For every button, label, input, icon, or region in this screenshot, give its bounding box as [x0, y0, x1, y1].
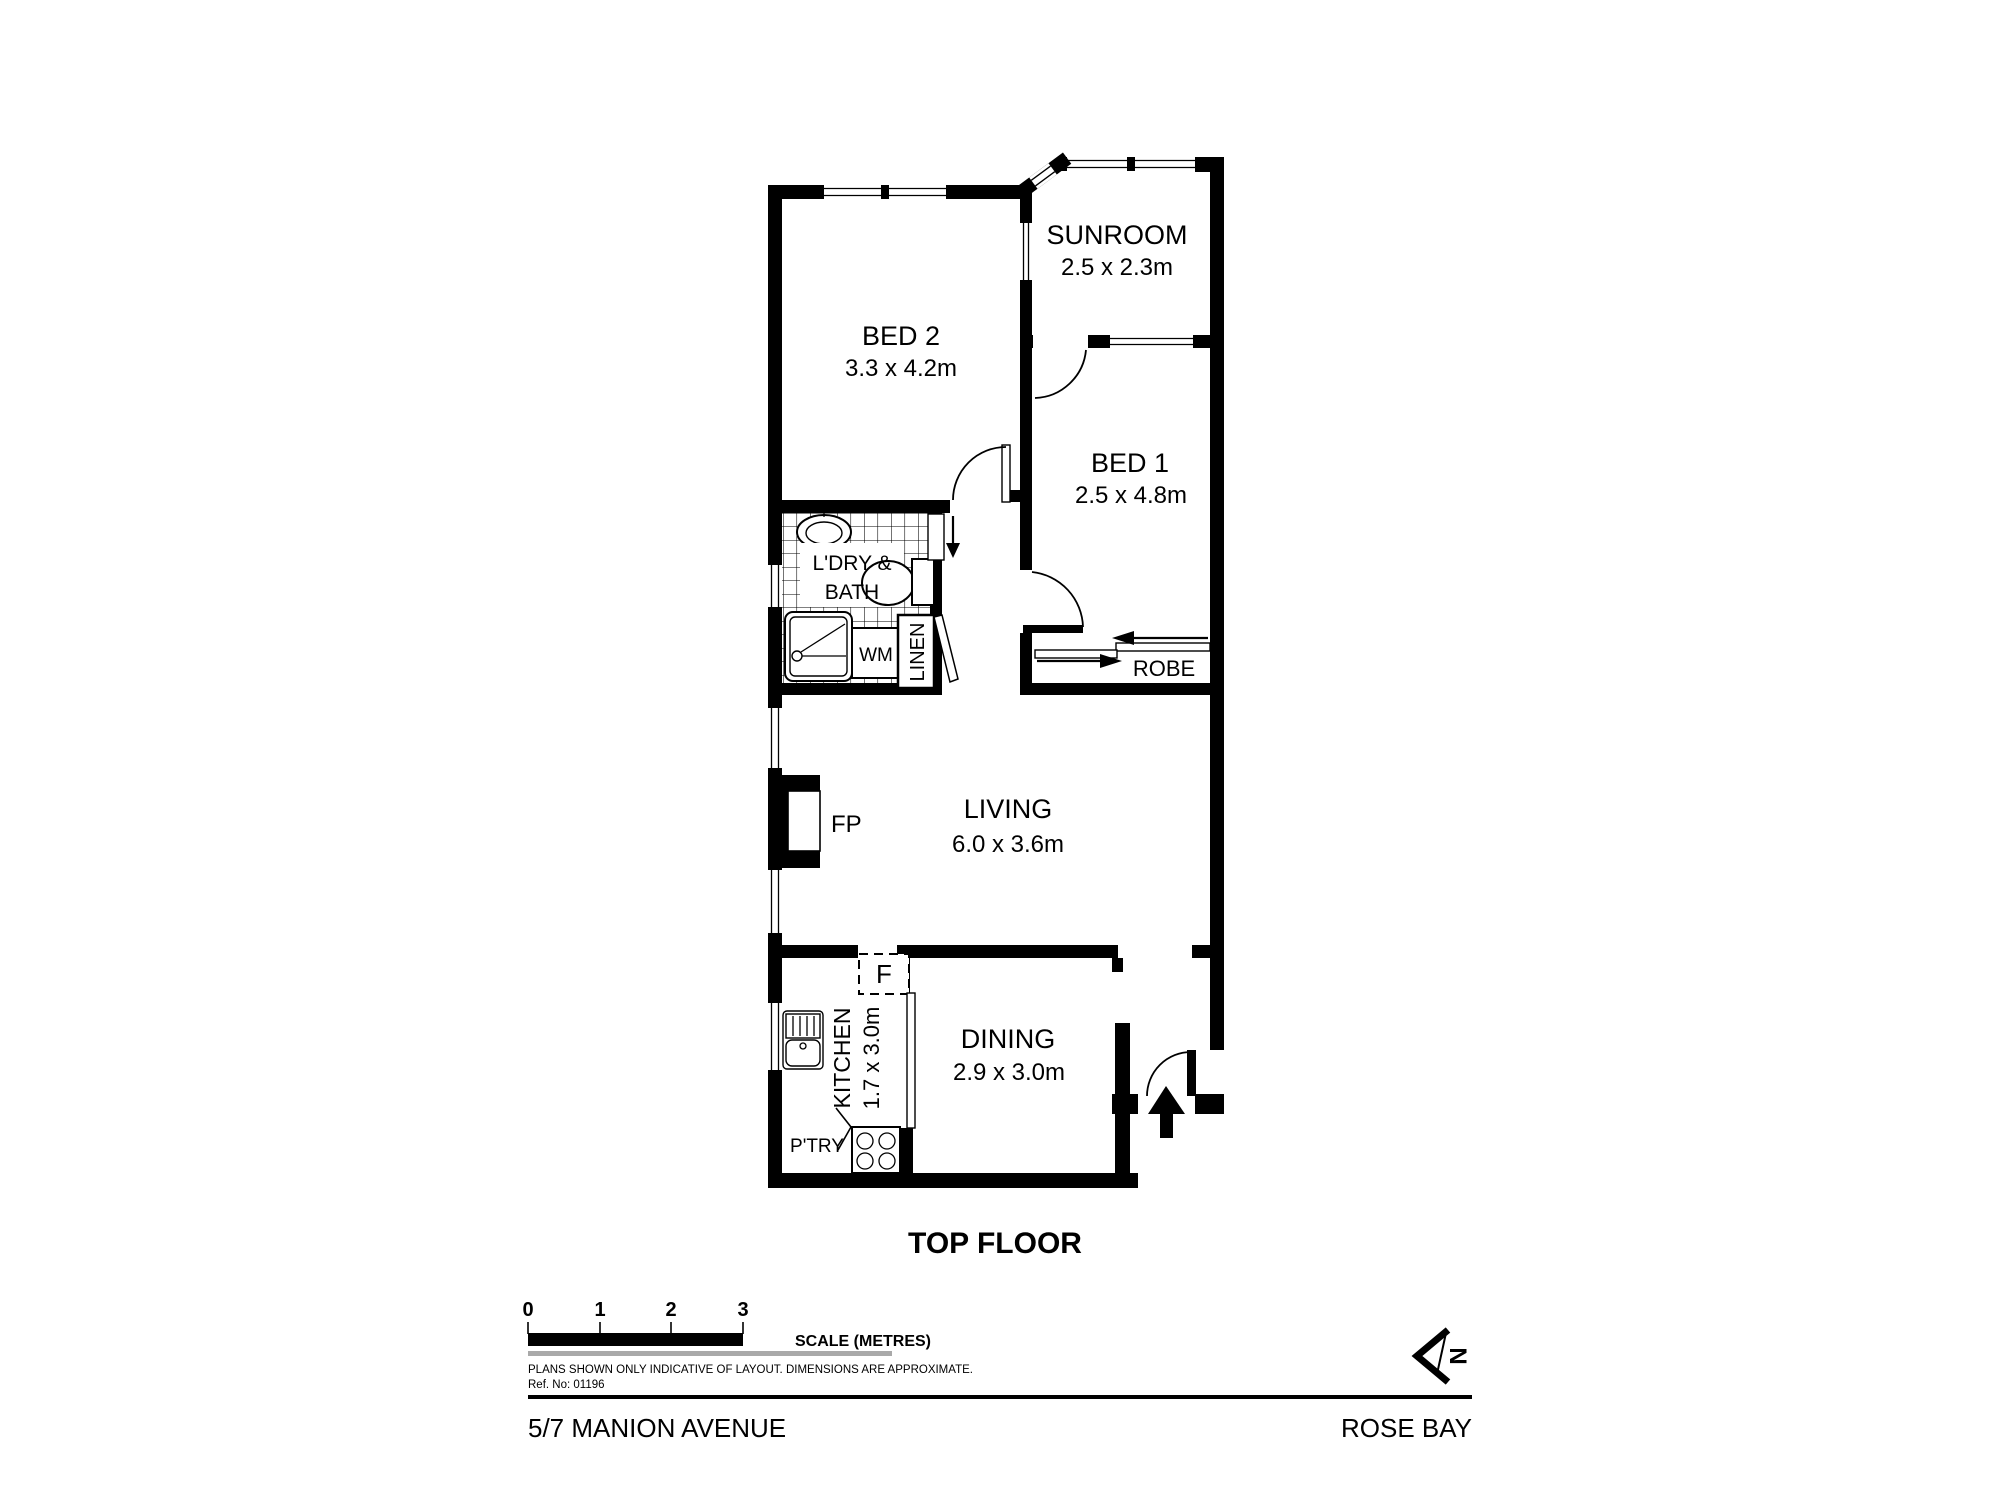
- address-text: 5/7 MANION AVENUE: [528, 1413, 786, 1443]
- divider-gray: [528, 1351, 892, 1356]
- suburb-text: ROSE BAY: [1341, 1413, 1472, 1443]
- living-dims: 6.0 x 3.6m: [952, 831, 1064, 858]
- entry-door-arc: [1147, 1052, 1191, 1096]
- bath-label-line1: L'DRY &: [812, 552, 891, 575]
- sunroom-dims: 2.5 x 2.3m: [1061, 254, 1173, 281]
- bed2-door-leaf: [1002, 445, 1010, 502]
- bed2-door-arc: [953, 447, 1006, 500]
- bed1-divider-window: [1110, 339, 1193, 345]
- sunroom-side-window: [1024, 223, 1029, 280]
- wm-label: WM: [859, 645, 893, 666]
- basin-bowl: [806, 522, 842, 544]
- scale-tick-3: 3: [737, 1299, 748, 1321]
- kitchen-bench-return: [907, 993, 915, 1128]
- sunroom-door-arc: [1035, 350, 1086, 398]
- chamfer-corner: [1015, 153, 1072, 200]
- scale-tick-0: 0: [522, 1299, 533, 1321]
- north-chevron: [1417, 1330, 1448, 1382]
- firebox: [788, 791, 820, 851]
- bed2-label: BED 2: [862, 321, 940, 351]
- sunroom-label: SUNROOM: [1047, 220, 1188, 250]
- robe-label: ROBE: [1133, 656, 1195, 681]
- north-arrow: N: [1417, 1330, 1471, 1382]
- floorplan-canvas: BED 2 3.3 x 4.2m SUNROOM 2.5 x 2.3m BED …: [0, 0, 2000, 1500]
- bed2-dims: 3.3 x 4.2m: [845, 355, 957, 382]
- dining-label: DINING: [961, 1024, 1056, 1054]
- kitchen-label: KITCHEN: [829, 1008, 855, 1109]
- scale-tick-2: 2: [665, 1299, 676, 1321]
- footer-rule: [528, 1395, 1472, 1399]
- robe-track-rear: [1116, 643, 1210, 651]
- pantry-label: P'TRY: [790, 1136, 844, 1157]
- living-label: LIVING: [964, 794, 1053, 824]
- disclaimer-text: PLANS SHOWN ONLY INDICATIVE OF LAYOUT. D…: [528, 1364, 973, 1376]
- scale-tick-1: 1: [594, 1299, 605, 1321]
- bath-door-panel: [928, 514, 944, 560]
- bath-label-line2: BATH: [825, 581, 879, 604]
- bed1-label: BED 1: [1091, 448, 1169, 478]
- fridge-label: F: [876, 959, 892, 989]
- dining-dims: 2.9 x 3.0m: [953, 1059, 1065, 1086]
- sink-bowl: [786, 1040, 820, 1066]
- toilet-cistern: [912, 559, 934, 605]
- fireplace: [788, 791, 820, 851]
- bed1-dims: 2.5 x 4.8m: [1075, 482, 1187, 509]
- linen-label: LINEN: [907, 623, 929, 682]
- sink-drainer: [786, 1014, 820, 1038]
- level-title: TOP FLOOR: [908, 1227, 1082, 1260]
- north-label: N: [1444, 1347, 1471, 1364]
- entry-arrow-shaft: [1160, 1110, 1173, 1138]
- scale-unit-label: SCALE (METRES): [795, 1333, 931, 1350]
- shower-head: [792, 651, 802, 661]
- reference-text: Ref. No: 01196: [528, 1379, 605, 1391]
- scale-bar-solid: [528, 1333, 743, 1346]
- entry-arrow-head: [1148, 1086, 1185, 1114]
- shower-inner: [790, 617, 847, 676]
- bed1-door-arc: [1032, 572, 1083, 627]
- fp-label: FP: [831, 811, 862, 838]
- hall-down-arrow: [946, 543, 960, 558]
- scale-bar: 0 1 2 3 SCALE (METRES) PLANS SHOWN ONLY …: [522, 1299, 1472, 1443]
- kitchen-dims: 1.7 x 3.0m: [859, 1007, 884, 1110]
